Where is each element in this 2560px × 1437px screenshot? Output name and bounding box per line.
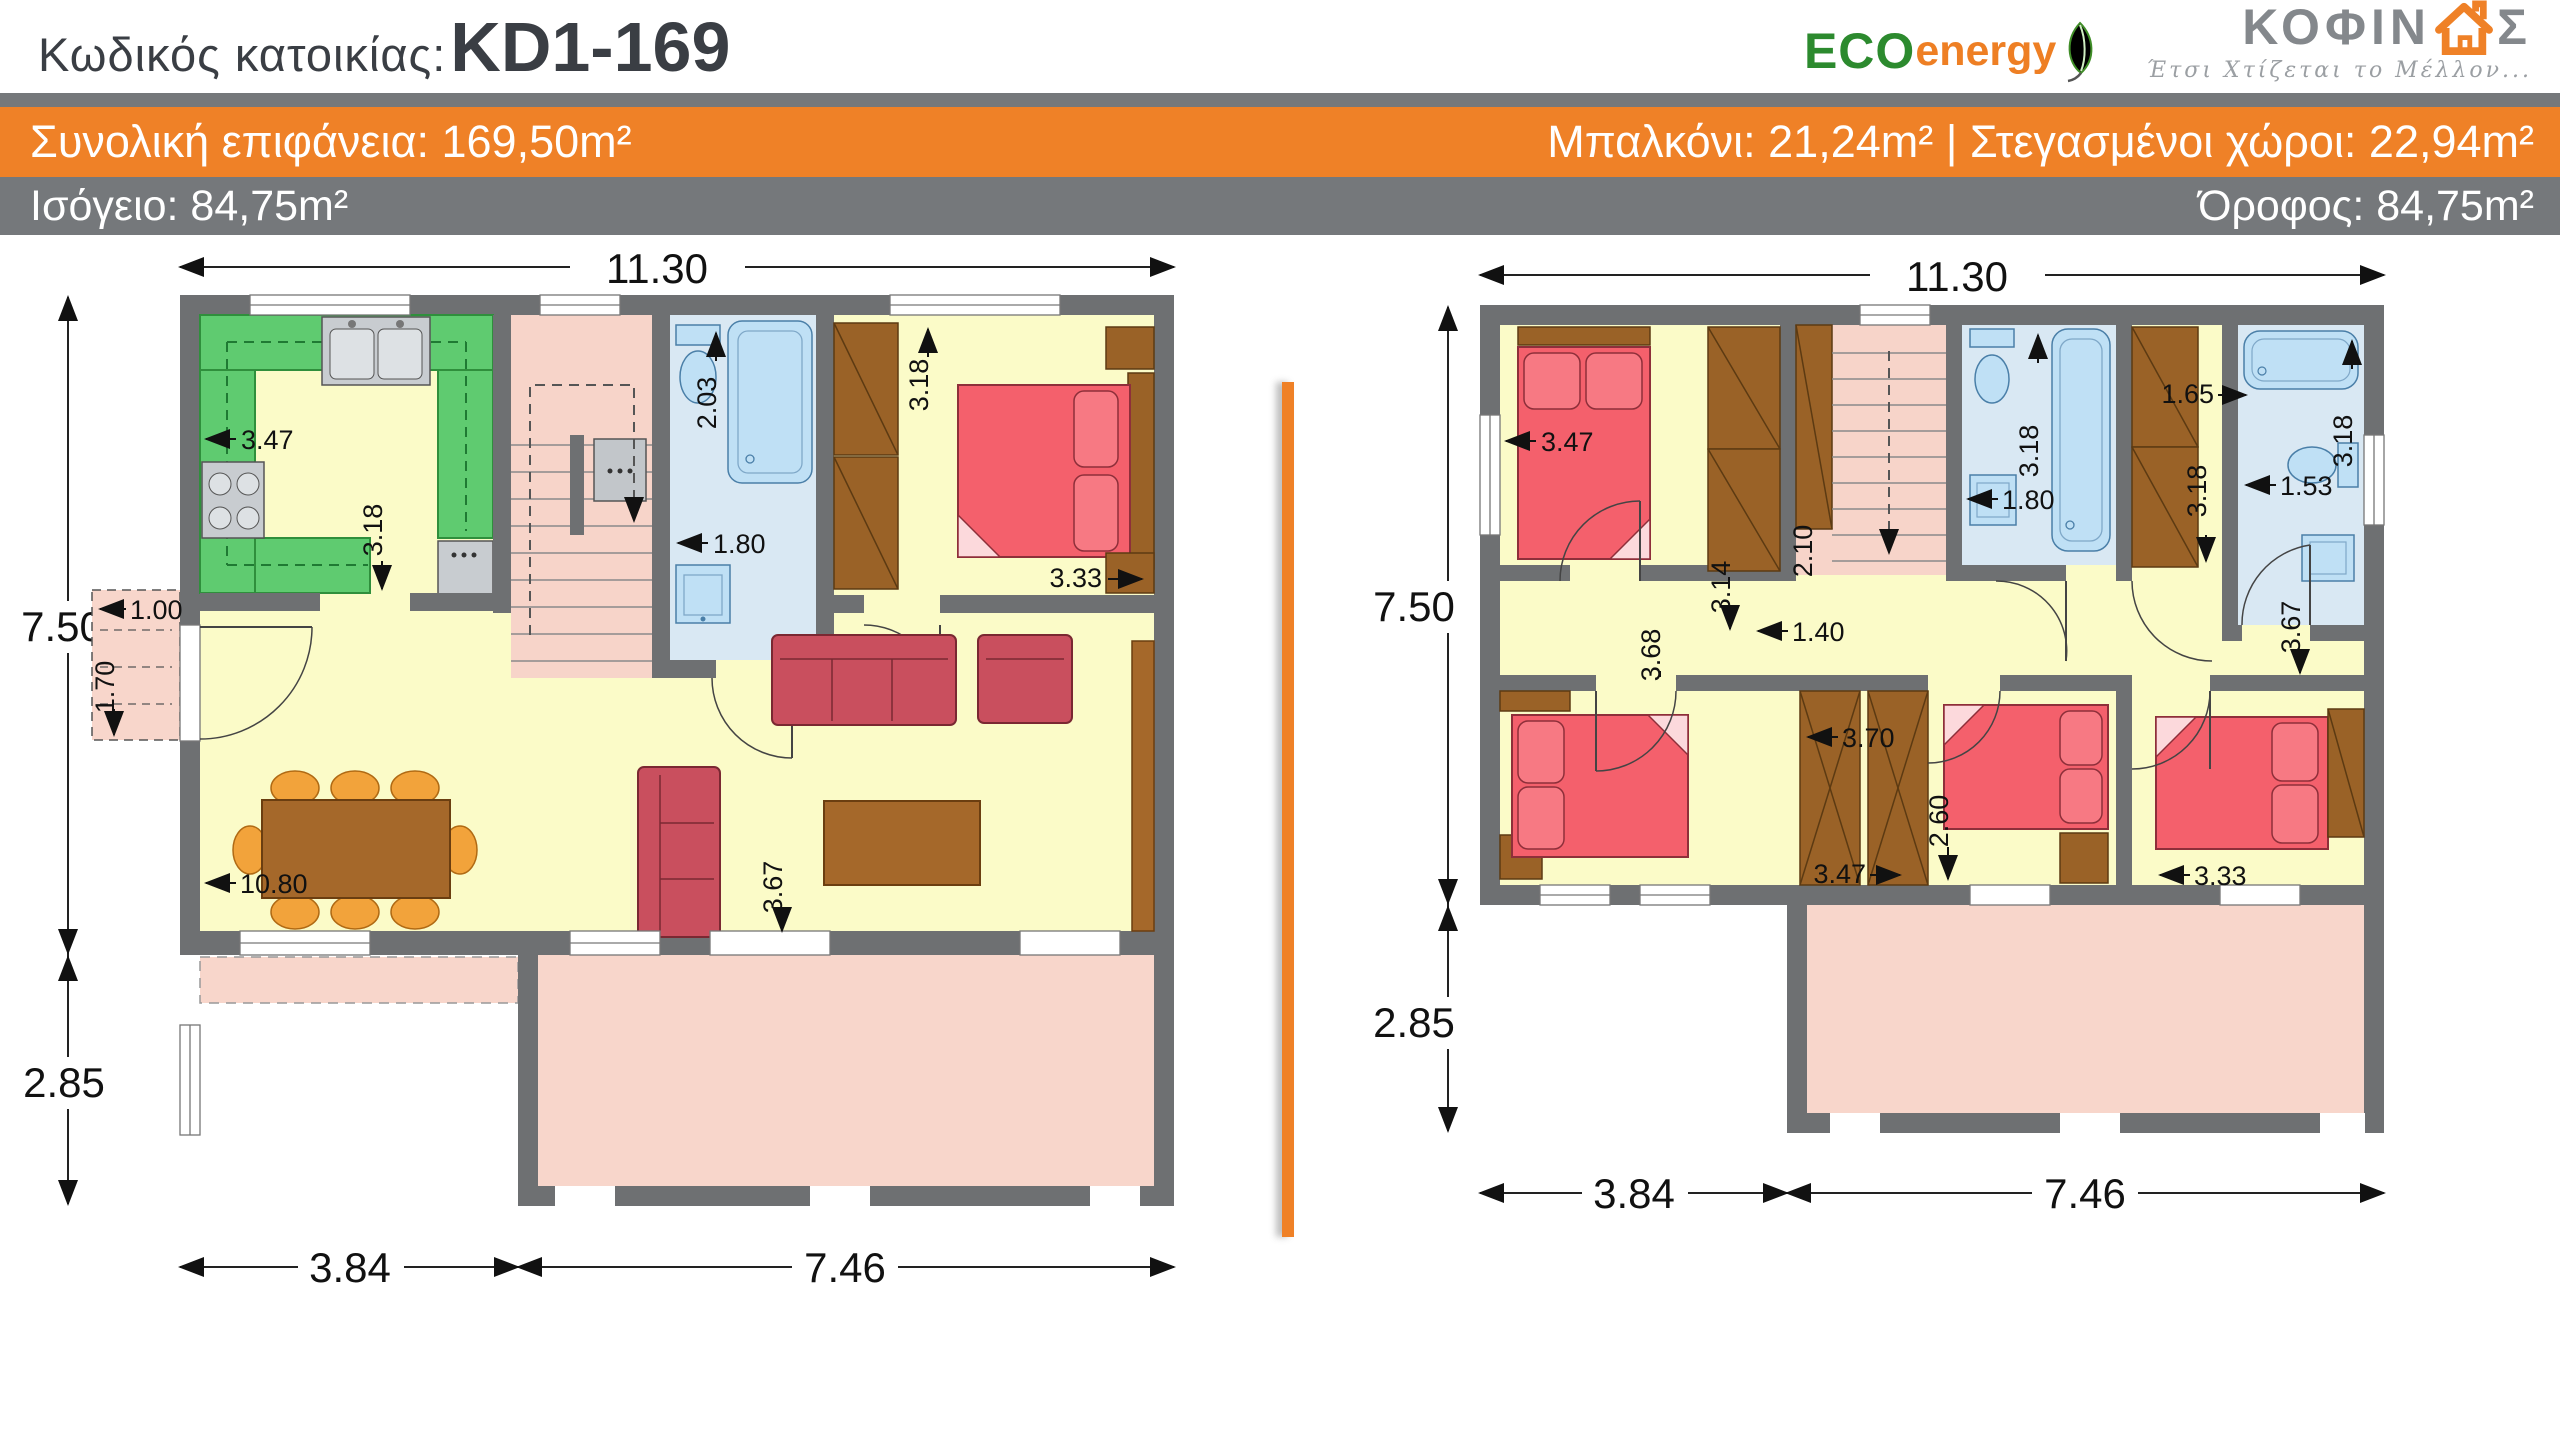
dim-bath2-length: 3.18 [2328,415,2358,468]
dim-closet-width: 1.65 [2161,379,2214,409]
dim-bedroom-height: 3.18 [904,359,934,412]
dim-total-width: 11.30 [1906,253,2008,300]
house-icon [2433,0,2495,55]
kofinas-name: ΚΟΦΙΝ Σ [2242,0,2532,56]
headboard [1128,373,1154,569]
nightstand [1106,327,1154,369]
sofa-vertical [638,767,720,937]
dim-living-width: 10.80 [240,869,308,899]
eaves-strip [200,957,518,1003]
total-area: Συνολική επιφάνεια: 169,50m² [30,116,632,168]
plans-area: 11.30 7.50 2.85 3.84 7.46 [0,235,2560,1437]
dim-bottom-right: 7.46 [2044,1170,2126,1217]
dim-bath1-width: 1.80 [2002,485,2055,515]
dim-bedroom4-height: 3.67 [2276,601,2306,654]
gray-strip [0,93,2560,107]
balcony-covered-areas: Μπαλκόνι: 21,24m² | Στεγασμένοι χώροι: 2… [1547,116,2534,168]
dim-bedroom3-width: 2.60 [1924,795,1954,848]
dim-balcony-width: 1.00 [130,595,183,625]
dim-wardrobe-height: 3.18 [2182,465,2212,518]
dim-bedroom4-width: 3.33 [2194,861,2247,891]
house-code-label: Κωδικός κατοικίας: [38,28,446,81]
dim-bedroom1-width: 3.47 [1541,427,1594,457]
coffee-table [824,801,980,885]
washbasin-icon [676,565,730,623]
dim-bedroom-width: 3.33 [1049,563,1102,593]
header: Κωδικός κατοικίας:KD1-169 ECOenergy ΚΟΦΙ… [0,0,2560,93]
bathtub-icon [2052,329,2110,551]
plan-divider [1282,382,1294,1237]
dim-hall-width: 1.40 [1792,617,1845,647]
dim-kitchen-width: 3.47 [241,425,294,455]
shower-icon [728,321,812,483]
staircase [511,315,652,678]
kofinas-text-right: Σ [2497,0,2532,56]
upper-floor-area: Όροφος: 84,75m² [2198,182,2534,231]
nightstand [1106,553,1154,593]
dim-bottom-left: 3.84 [1593,1170,1675,1217]
dim-closet-height: 3.70 [1842,723,1895,753]
dim-balcony-depth: 1.70 [90,661,120,714]
fridge [438,541,493,595]
balcony [1787,905,2384,1133]
armchair [978,635,1072,723]
dim-stairs-height: 2.10 [1788,525,1818,578]
dim-bath1-length: 3.18 [2014,425,2044,478]
dim-closet-bottom-width: 3.47 [1813,859,1866,889]
dim-porch-height: 2.85 [23,1059,105,1106]
ground-floor-area: Ισόγειο: 84,75m² [30,182,348,231]
dim-bottom-right: 7.46 [804,1244,886,1291]
dim-bath-width: 1.80 [713,529,766,559]
sofa-3seat [772,635,956,725]
logo-group: ECOenergy ΚΟΦΙΝ Σ [1804,0,2560,93]
dim-balcony-height: 2.85 [1373,999,1455,1046]
dim-living-height: 3.67 [758,861,788,914]
dim-total-width: 11.30 [606,245,708,292]
eco-logo-text: ECO [1804,22,1915,80]
kofinas-text-left: ΚΟΦΙΝ [2242,0,2431,56]
toilet-icon [1975,355,2009,403]
upper-floor-plan: 11.30 7.50 2.85 3.84 7.46 [1360,235,2560,1355]
eco-energy-logo: ECOenergy [1804,19,2100,83]
dim-bath2-width: 1.53 [2280,471,2333,501]
dim-main-height: 7.50 [1373,583,1455,630]
dim-bedroom2-height: 3.68 [1636,629,1666,682]
floors-banner: Ισόγειο: 84,75m² Όροφος: 84,75m² [0,177,2560,235]
orange-banner: Συνολική επιφάνεια: 169,50m² Μπαλκόνι: 2… [0,107,2560,177]
energy-logo-text: energy [1915,27,2056,76]
tv-cabinet [1132,641,1154,931]
stove [202,462,264,538]
porch [518,955,1174,1206]
plan-sheet: Κωδικός κατοικίας:KD1-169 ECOenergy ΚΟΦΙ… [0,0,2560,1437]
dim-kitchen-height: 3.18 [358,504,388,557]
kitchen-sink [322,317,430,385]
ground-floor-plan: 11.30 7.50 2.85 3.84 7.46 [10,235,1280,1355]
page-title: Κωδικός κατοικίας:KD1-169 [0,7,730,93]
dim-main-height: 7.50 [21,603,103,650]
house-code: KD1-169 [450,8,730,86]
kofinas-logo: ΚΟΦΙΝ Σ Έτσι Χτίζεται το Μέλλον... [2146,0,2532,83]
staircase [1796,325,1946,575]
bedroom-2 [1500,691,1688,879]
leaf-icon [2056,19,2100,83]
dim-bedroom1-height: 3.14 [1706,561,1736,614]
double-bed [958,385,1130,557]
kofinas-tagline: Έτσι Χτίζεται το Μέλλον... [2146,58,2532,83]
dim-shower-length: 2.03 [692,377,722,430]
dim-bottom-left: 3.84 [309,1244,391,1291]
